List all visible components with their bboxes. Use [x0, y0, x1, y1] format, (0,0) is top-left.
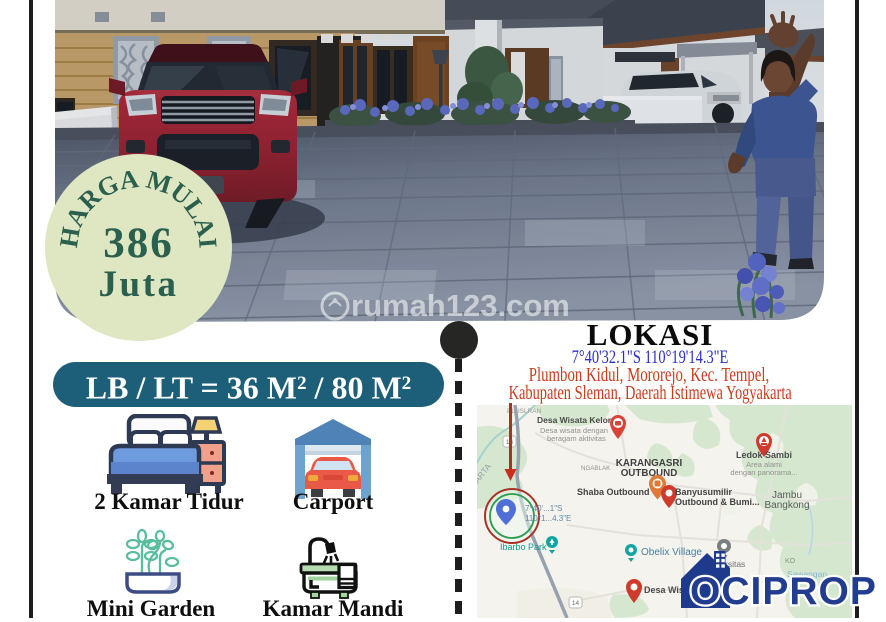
svg-text:14: 14: [572, 600, 580, 607]
svg-text:Ledok Sambi: Ledok Sambi: [736, 450, 792, 460]
svg-text:Juta: Juta: [99, 264, 179, 305]
svg-text:beragam aktivitas: beragam aktivitas: [547, 434, 606, 443]
svg-text:110°1...4.3"E: 110°1...4.3"E: [525, 514, 571, 523]
svg-text:OUTBOUND: OUTBOUND: [621, 468, 678, 479]
svg-text:dengan panorama...: dengan panorama...: [730, 468, 797, 477]
svg-text:NGABLAK: NGABLAK: [581, 465, 611, 472]
svg-text:386: 386: [103, 220, 174, 267]
svg-text:Ibarbo Park: Ibarbo Park: [500, 542, 547, 552]
svg-text:OCIPROP: OCIPROP: [690, 570, 877, 613]
svg-text:Shaba Outbound: Shaba Outbound: [577, 487, 650, 497]
svg-text:Bangkong: Bangkong: [764, 500, 809, 511]
svg-text:Banyusumilir: Banyusumilir: [675, 487, 733, 497]
svg-text:Desa Wisata Kelor: Desa Wisata Kelor: [537, 415, 612, 425]
svg-text:Outbound & Bumi...: Outbound & Bumi...: [675, 497, 760, 507]
svg-text:7°40'...1"S: 7°40'...1"S: [525, 504, 562, 513]
